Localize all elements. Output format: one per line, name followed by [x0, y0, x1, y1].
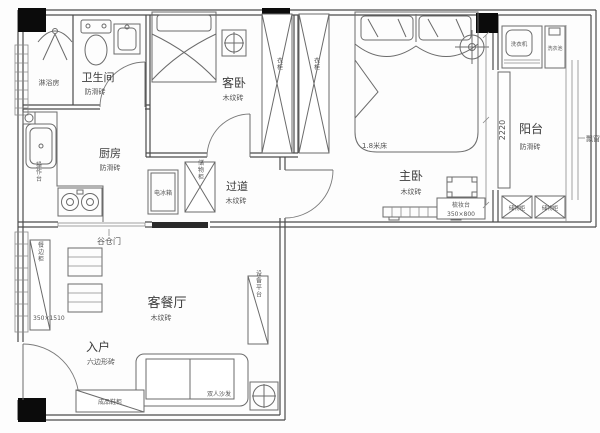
- sideboard-label: 餐边柜: [37, 241, 44, 263]
- guest-bedroom-door: [207, 114, 250, 157]
- master-bedroom-tile: 木纹砖: [401, 187, 422, 196]
- washing-machine: 洗衣机: [502, 26, 542, 68]
- hallway-label: 过道: [226, 179, 248, 193]
- balcony-cabinet-1: 储物柜: [502, 196, 532, 218]
- fridge: 电冰箱: [148, 170, 178, 214]
- kitchen-tile: 防滑砖: [100, 163, 121, 172]
- fridge-label: 电冰箱: [154, 189, 172, 197]
- side-table: [250, 382, 278, 410]
- bathroom-tile: 防滑砖: [85, 87, 106, 96]
- ceiling-lamp-master: [455, 30, 489, 64]
- shoe-cabinet-label: 成品鞋柜: [98, 398, 122, 406]
- sofa-label: 双人沙发: [207, 390, 231, 398]
- laundry-sink-label: 洗衣池: [547, 45, 562, 52]
- hall-sliding-door: [152, 222, 208, 228]
- living-dining-tile: 木纹砖: [151, 313, 172, 322]
- master-bed: 1.8米床: [355, 12, 478, 152]
- guest-wardrobe-label: 衣柜: [276, 56, 283, 71]
- interior-walls: [23, 15, 498, 222]
- guest-bedroom-tile: 木纹砖: [223, 93, 244, 102]
- master-bed-label: 1.8米床: [362, 141, 387, 150]
- shower-area: 淋浴房: [38, 29, 72, 88]
- sideboard: 餐边柜 350×1510: [30, 240, 65, 330]
- bay-window-label: 飘窗: [586, 134, 600, 143]
- column-balcony: [476, 13, 498, 33]
- master-bedroom-door: [285, 170, 333, 218]
- master-wardrobe-label: 衣柜: [313, 56, 320, 71]
- sofa: 双人沙发: [136, 354, 248, 406]
- gas-stove: [58, 188, 102, 216]
- guest-wardrobe: 衣柜: [262, 14, 292, 153]
- column-bottom-left: [18, 398, 46, 422]
- equipment-platform-label: 设备平台: [255, 269, 262, 298]
- washer-label: 洗衣机: [511, 40, 528, 48]
- balcony-cabinet-1-label: 储物柜: [509, 204, 526, 212]
- sideboard-size: 350×1510: [33, 315, 65, 322]
- dressing-table: 梳妆台 350×800: [437, 177, 485, 219]
- master-bedroom-label: 主卧: [399, 169, 423, 183]
- balcony-tile: 防滑砖: [520, 142, 541, 151]
- toilet: [81, 20, 111, 65]
- dining-chairs: [68, 248, 102, 312]
- shoe-cabinet: 成品鞋柜: [76, 390, 144, 412]
- floor-plan-drawing: 飘窗 谷仓门: [0, 0, 600, 433]
- living-dining-label: 客餐厅: [147, 295, 186, 311]
- kitchen-label: 厨房: [99, 147, 121, 160]
- window-balcony-bay: 飘窗: [566, 25, 600, 222]
- guest-bedroom-label: 客卧: [222, 75, 246, 90]
- dresser-label: 梳妆台: [452, 201, 470, 209]
- laundry-sink: 洗衣池: [545, 26, 565, 68]
- hallway-tile: 木纹砖: [226, 196, 247, 205]
- guest-nightstand: [222, 30, 246, 56]
- balcony-cabinet-2-label: 储物柜: [542, 204, 559, 212]
- barn-door-track: 谷仓门: [58, 223, 145, 246]
- balcony-label: 阳台: [519, 121, 543, 136]
- column-top-left: [18, 8, 46, 32]
- window-dining: [15, 232, 28, 332]
- bathroom-door: [100, 62, 145, 107]
- bathroom-label: 卫生间: [82, 70, 115, 84]
- entry-tile: 六边形砖: [87, 357, 115, 366]
- dresser-size: 350×800: [447, 211, 475, 218]
- shower-label: 淋浴房: [39, 78, 60, 87]
- floor-plan-page: 飘窗 谷仓门: [0, 0, 600, 433]
- balcony-dimension: 2220: [498, 120, 507, 140]
- equipment-platform: 设备平台: [248, 269, 268, 344]
- dimension-line-master: [483, 32, 489, 208]
- balcony-cabinet-2: 储物柜: [535, 196, 565, 218]
- hall-cabinet-label: 储物柜: [197, 159, 204, 181]
- barn-door-label: 谷仓门: [97, 236, 121, 246]
- entry-label: 入户: [86, 339, 110, 354]
- guest-bed: [152, 12, 216, 82]
- hall-storage-cabinet: 储物柜: [185, 159, 215, 212]
- entry-door: [23, 344, 79, 400]
- master-wardrobe: 衣柜: [299, 14, 329, 153]
- bathroom-basin: [114, 24, 140, 54]
